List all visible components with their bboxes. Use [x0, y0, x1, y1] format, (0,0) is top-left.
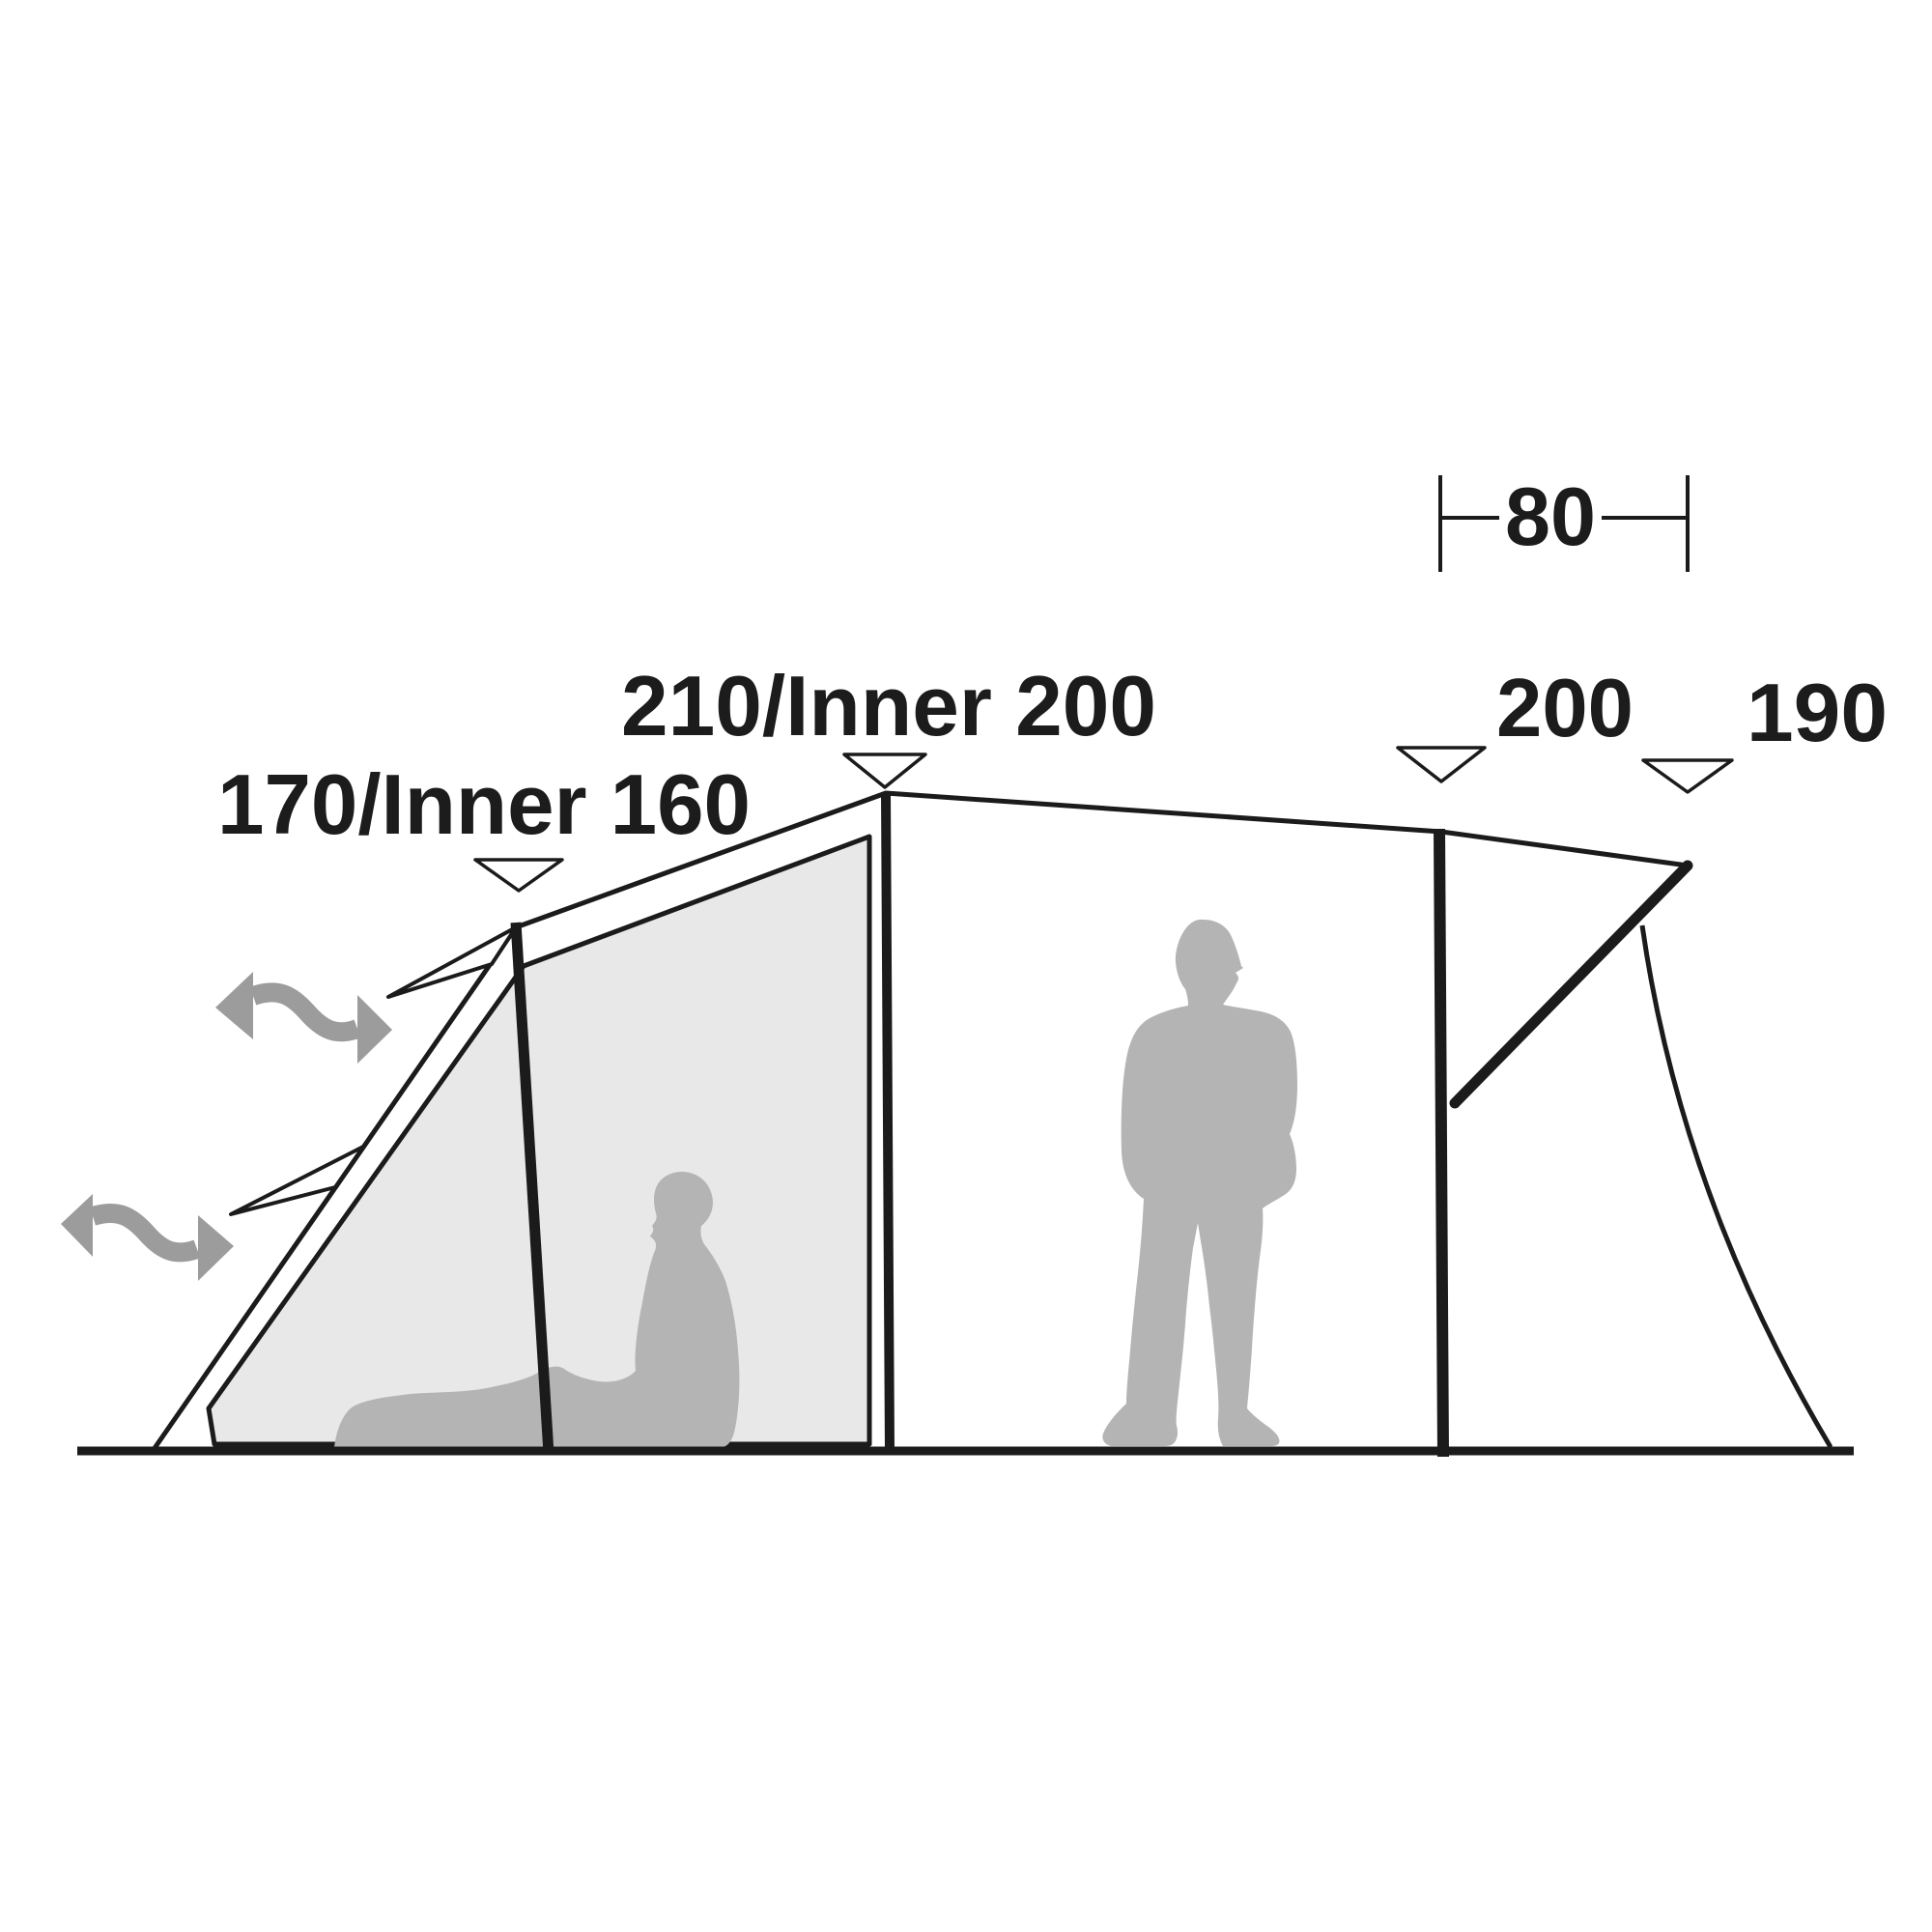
svg-text:80: 80: [1505, 471, 1596, 563]
svg-text:200: 200: [1496, 663, 1634, 754]
svg-text:190: 190: [1747, 668, 1888, 759]
svg-text:170/Inner 160: 170/Inner 160: [217, 756, 751, 852]
svg-text:210/Inner 200: 210/Inner 200: [621, 658, 1156, 753]
